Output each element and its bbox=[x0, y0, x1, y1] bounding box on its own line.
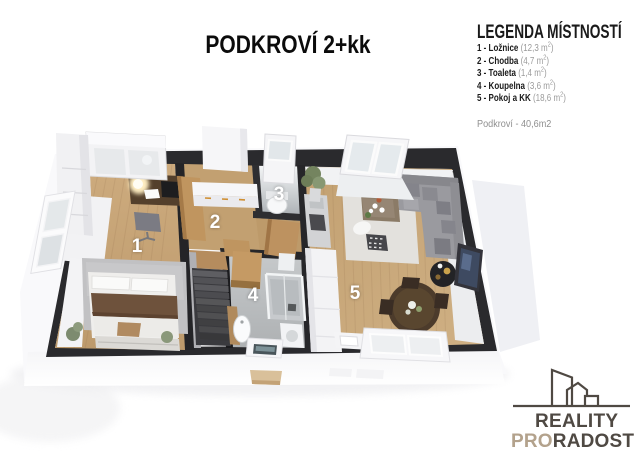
svg-text:1: 1 bbox=[132, 236, 143, 257]
svg-text:5: 5 bbox=[350, 283, 361, 304]
svg-text:3: 3 bbox=[274, 184, 285, 205]
svg-text:4: 4 bbox=[248, 285, 259, 306]
svg-text:2: 2 bbox=[210, 212, 221, 233]
svg-text:PRORADOST: PRORADOST bbox=[511, 431, 634, 452]
svg-text:REALITY: REALITY bbox=[535, 411, 618, 432]
